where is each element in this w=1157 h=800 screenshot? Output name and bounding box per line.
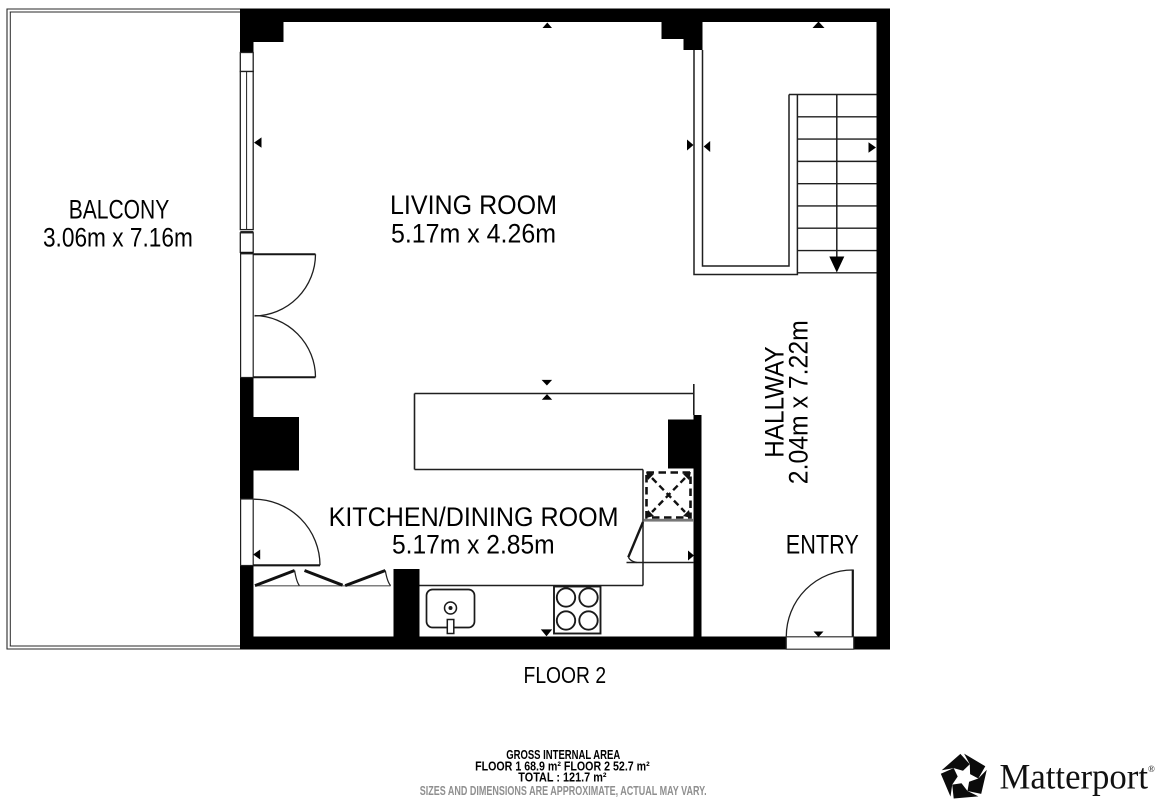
svg-text:®: ®: [1148, 764, 1155, 774]
svg-text:2.04m x 7.22m: 2.04m x 7.22m: [784, 320, 814, 484]
svg-text:5.17m x 2.85m: 5.17m x 2.85m: [392, 530, 555, 560]
svg-text:LIVING ROOM: LIVING ROOM: [390, 190, 557, 220]
svg-text:Matterport: Matterport: [1000, 757, 1149, 797]
svg-text:SIZES AND DIMENSIONS ARE APPRO: SIZES AND DIMENSIONS ARE APPROXIMATE, AC…: [420, 783, 707, 798]
svg-text:3.06m x 7.16m: 3.06m x 7.16m: [43, 223, 193, 253]
svg-text:FLOOR 2: FLOOR 2: [524, 662, 607, 688]
svg-text:BALCONY: BALCONY: [69, 195, 170, 225]
svg-text:5.17m x 4.26m: 5.17m x 4.26m: [391, 219, 556, 249]
svg-text:ENTRY: ENTRY: [786, 529, 859, 559]
svg-text:KITCHEN/DINING ROOM: KITCHEN/DINING ROOM: [329, 502, 619, 532]
